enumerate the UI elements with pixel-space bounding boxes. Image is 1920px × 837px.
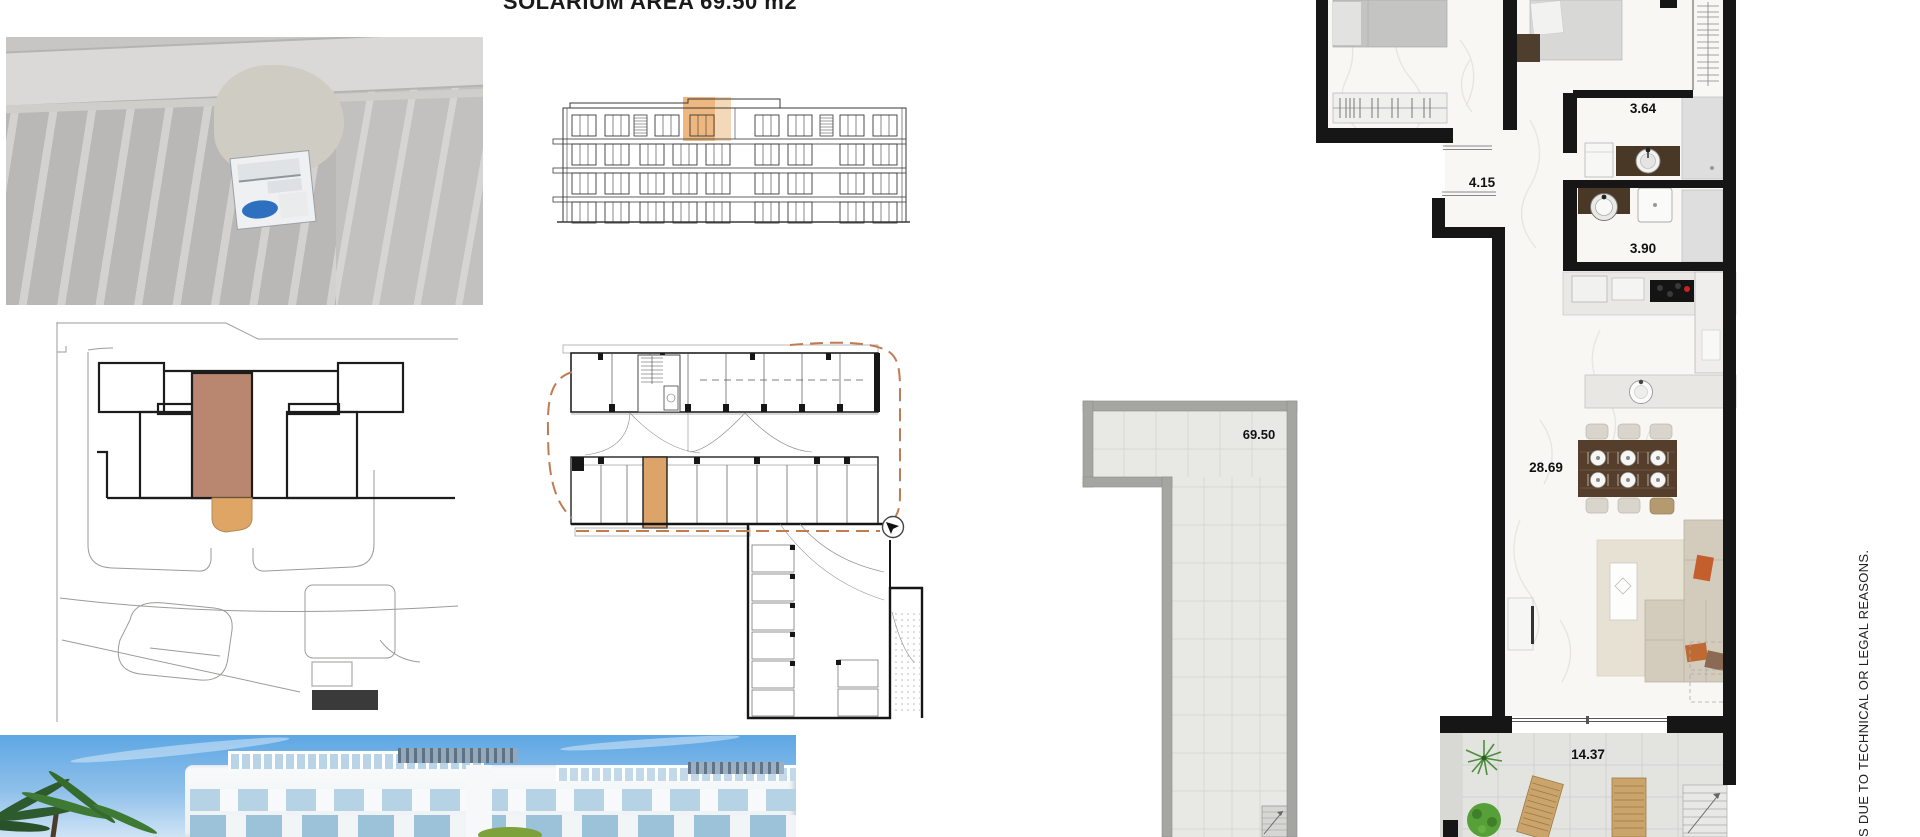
plan-sheet: SOLARIUM AREA 69.50 m2 [0, 0, 1920, 837]
sliding-door [1512, 716, 1667, 724]
aerial-map [6, 37, 483, 305]
cooktop-burner-on [1684, 286, 1690, 292]
site-building-outline [97, 363, 455, 498]
tv-icon [1531, 606, 1534, 644]
palm-trunk [50, 813, 59, 837]
elevation-structure [553, 99, 910, 222]
palm-frond [91, 801, 158, 837]
building-roof-annex [267, 178, 302, 193]
keyplan-garage [748, 524, 922, 718]
coffee-table [1610, 563, 1637, 620]
entrance-marker-icon [883, 517, 904, 538]
dining-area [1578, 424, 1677, 514]
cloud [560, 735, 740, 753]
terrace-stair [1683, 785, 1727, 837]
bathroom1-area-label: 3.64 [1630, 101, 1657, 116]
fridge [1572, 276, 1607, 302]
palm-frond [0, 818, 50, 834]
shower-floor1 [1682, 97, 1723, 179]
site-highlighted-unit [192, 373, 252, 498]
sheet-title: SOLARIUM AREA 69.50 m2 [470, 0, 830, 15]
elevation-windows [572, 115, 897, 223]
pool-deck [278, 192, 308, 219]
keyplan-highlighted-unit [643, 457, 667, 528]
bedroom2 [1517, 0, 1622, 62]
roof-pergola [688, 762, 784, 774]
bush-icon [1467, 803, 1501, 837]
solarium-plan: 69.50 [1078, 395, 1300, 837]
legal-disclaimer: S DUE TO TECHNICAL OR LEGAL REASONS. [1856, 550, 1871, 837]
kitchen-island [1585, 375, 1736, 408]
apartment-plan: 3.64 4.15 3.90 28.69 14.37 [1300, 0, 1740, 837]
keyplan-lower-wing [571, 457, 878, 524]
elevation-drawing [550, 85, 910, 227]
hallway-area-label: 4.15 [1469, 175, 1496, 190]
keyplan-entry-arcs [585, 413, 812, 455]
living-area-label: 28.69 [1529, 460, 1563, 475]
bathroom2-area-label: 3.90 [1630, 241, 1656, 256]
map-highlighted-building [231, 151, 316, 229]
solarium-area-label: 69.50 [1243, 427, 1276, 442]
facade-pillar [466, 765, 492, 837]
keyplan-stair-core [638, 355, 680, 412]
site-highlighted-entry [212, 498, 252, 532]
shower-floor2 [1682, 190, 1723, 262]
solarium-floor [1093, 411, 1287, 837]
elevation-highlighted-unit [683, 97, 715, 141]
elevation-highlighted-unit-edge [715, 97, 731, 141]
tv-unit [1508, 598, 1533, 650]
terrace-area-label: 14.37 [1571, 747, 1605, 762]
site-plot-lines [57, 322, 458, 722]
key-floor-plan [540, 338, 940, 730]
garden-plant [478, 827, 542, 837]
solarium-stair [1262, 806, 1287, 837]
site-legend-block [312, 690, 378, 710]
site-plan [50, 315, 460, 725]
orange-pillow [1685, 643, 1708, 663]
sun-lounger [1612, 778, 1646, 837]
pool-icon [241, 199, 279, 221]
building-photo [0, 735, 796, 837]
roof-pergola [398, 748, 518, 763]
keyplan-upper-wing [571, 353, 878, 412]
nightstand [1517, 34, 1540, 62]
map-city-blocks-east [336, 77, 483, 305]
window-band [190, 789, 796, 811]
